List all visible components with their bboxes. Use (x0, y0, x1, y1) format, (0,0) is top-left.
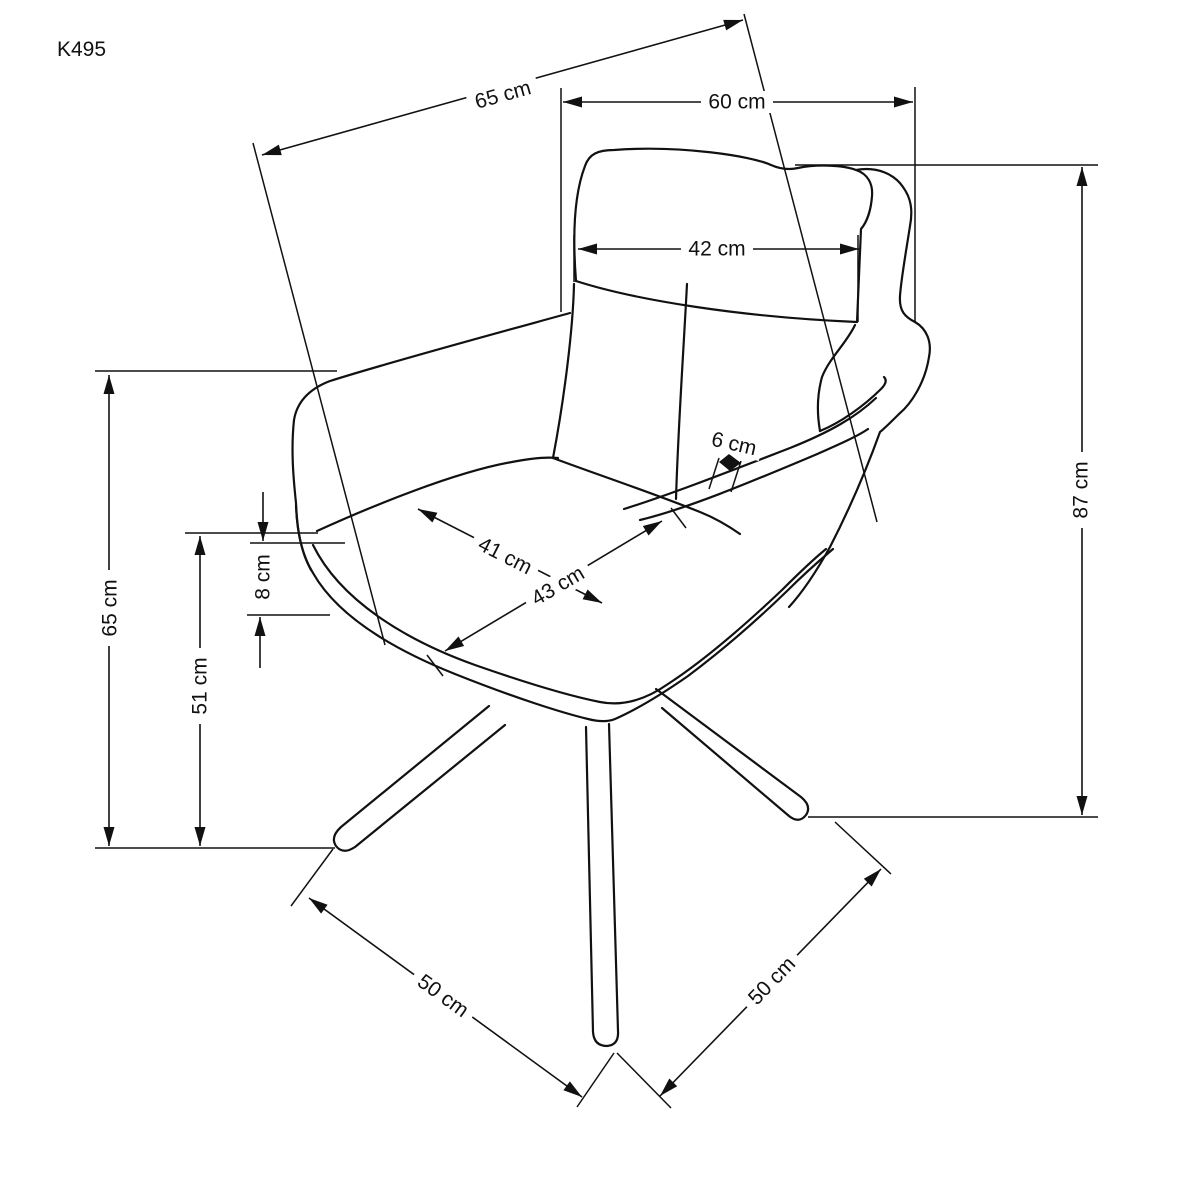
ext-50R-right (835, 822, 891, 874)
chair-backrest-right-seam (676, 284, 687, 499)
dim-label-text: 6 cm (709, 428, 759, 461)
dim-label-text: 50 cm (744, 952, 800, 1009)
dim-label-41: 41 cm (467, 529, 542, 583)
dim-label-text: 41 cm (474, 533, 535, 579)
dim-label-50-right: 50 cm (738, 947, 805, 1015)
ext-50-mid-right (617, 1053, 671, 1108)
chair-leg-front-right (586, 724, 618, 1046)
chair-headrest-outline (574, 149, 872, 322)
dim-label-text: 65 cm (472, 76, 533, 113)
chair-backrest-left-seam (553, 284, 574, 458)
dim-label-text: 87 cm (1070, 461, 1093, 518)
dim-label-8: 8 cm (252, 549, 275, 605)
dim-label-6: 6 cm (704, 426, 764, 461)
dim-label-text: 60 cm (708, 91, 765, 114)
dimension-drawing-page: K495 65 cm 60 cm 42 cm 87 cm 65 cm 8 cm … (0, 0, 1200, 1200)
dim-label-text: 42 cm (688, 238, 745, 261)
chair-leg-front-left (334, 706, 505, 851)
dim-label-65-top: 65 cm (465, 74, 541, 116)
dim-label-60: 60 cm (701, 91, 773, 114)
dim-label-65-left: 65 cm (99, 570, 122, 646)
chair-left-armrest-edge (293, 313, 570, 570)
chair-right-wing-inner-return (820, 377, 886, 431)
chair-cushion-back-edge (317, 458, 558, 531)
ext-6-tick-left (709, 458, 719, 489)
chair-right-shell-outline (789, 169, 930, 607)
dim-label-text: 65 cm (99, 579, 122, 636)
dim-label-text: 8 cm (252, 554, 275, 600)
dim-label-text: 51 cm (189, 657, 212, 714)
dim-label-50-left: 50 cm (407, 965, 479, 1027)
chair-outline (293, 149, 930, 1046)
ext-43-tick-left (427, 655, 443, 676)
dim-label-42: 42 cm (681, 238, 753, 261)
chair-leg-back-right (656, 689, 808, 820)
ext-50-mid-left (577, 1053, 614, 1107)
ext-43-tick-right (671, 508, 686, 528)
dim-label-87: 87 cm (1070, 452, 1093, 528)
chair-dimension-drawing: K495 65 cm 60 cm 42 cm 87 cm 65 cm 8 cm … (0, 0, 1200, 1200)
product-code-label: K495 (57, 38, 106, 61)
ext-50L-left (291, 849, 333, 906)
dim-label-51: 51 cm (189, 648, 212, 724)
dim-label-text: 50 cm (413, 970, 473, 1022)
